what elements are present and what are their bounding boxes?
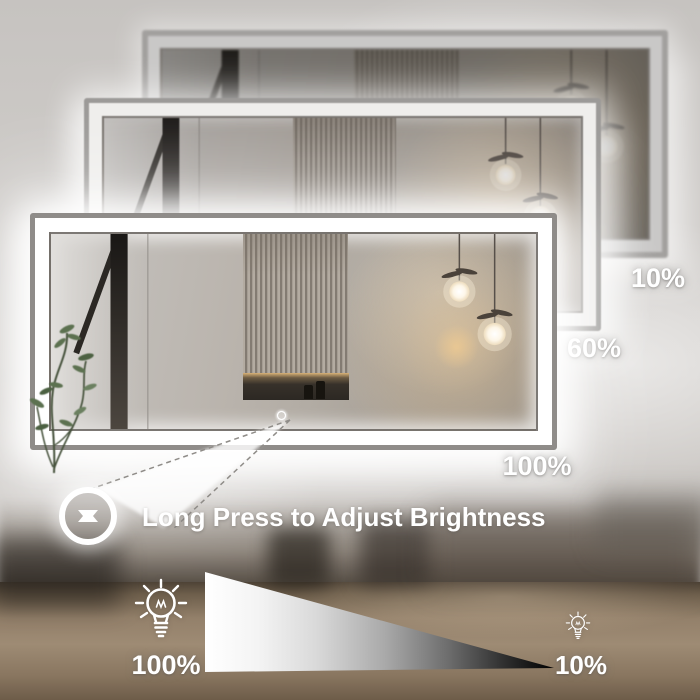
bulb-dim-icon <box>563 610 593 647</box>
adjust-brightness-button <box>59 487 117 545</box>
down-arrow-icon <box>78 510 98 522</box>
scale-high-label: 100% <box>124 650 208 681</box>
scale-low-label: 10% <box>546 650 616 681</box>
bulb-bright-icon <box>129 576 193 654</box>
brightness-label-back: 10% <box>622 263 694 294</box>
touch-control-button <box>277 411 286 420</box>
counter-object-blur <box>596 492 700 554</box>
counter-object-blur <box>0 538 120 606</box>
product-feature-image: 10% 60% <box>0 0 700 700</box>
brightness-label-middle: 60% <box>558 333 630 364</box>
plant <box>22 295 134 473</box>
counter-object-blur <box>268 528 330 586</box>
instruction-text: Long Press to Adjust Brightness <box>142 502 546 533</box>
brightness-label-front: 100% <box>492 451 582 482</box>
